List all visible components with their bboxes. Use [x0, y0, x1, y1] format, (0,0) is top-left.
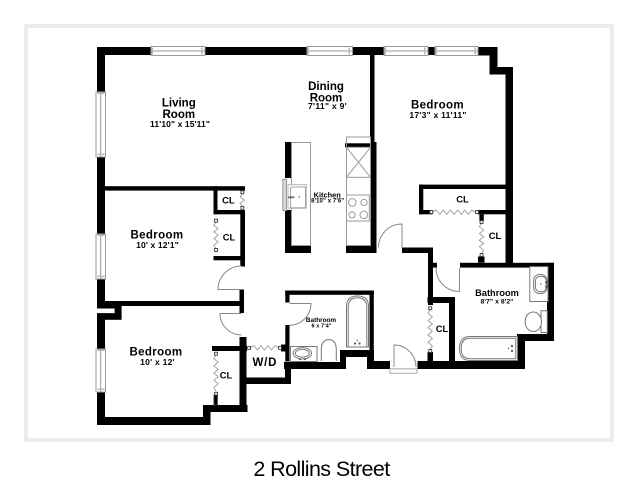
svg-text:10' x 12': 10' x 12': [140, 357, 175, 367]
svg-text:Dining: Dining: [308, 81, 344, 93]
svg-text:2 Rollins Street: 2 Rollins Street: [253, 457, 390, 481]
svg-text:Living: Living: [162, 98, 196, 110]
svg-text:6 x 7'4": 6 x 7'4": [312, 323, 332, 329]
svg-text:8'7" x 8'2": 8'7" x 8'2": [481, 299, 514, 306]
svg-text:CL: CL: [489, 230, 502, 241]
svg-text:CL: CL: [220, 370, 233, 381]
svg-text:7'11" x 9': 7'11" x 9': [308, 101, 347, 111]
svg-text:17'3" x 11'11": 17'3" x 11'11": [409, 110, 466, 120]
svg-text:CL: CL: [223, 232, 236, 243]
svg-text:CL: CL: [222, 195, 235, 206]
svg-text:Bathroom: Bathroom: [475, 288, 519, 298]
svg-text:10' x 12'1": 10' x 12'1": [136, 240, 179, 250]
svg-text:W/D: W/D: [253, 357, 278, 369]
svg-text:CL: CL: [436, 323, 449, 334]
svg-text:11'10" x 15'11": 11'10" x 15'11": [150, 119, 210, 129]
svg-text:CL: CL: [456, 194, 469, 205]
svg-text:8'10" x 7'6": 8'10" x 7'6": [311, 199, 344, 205]
